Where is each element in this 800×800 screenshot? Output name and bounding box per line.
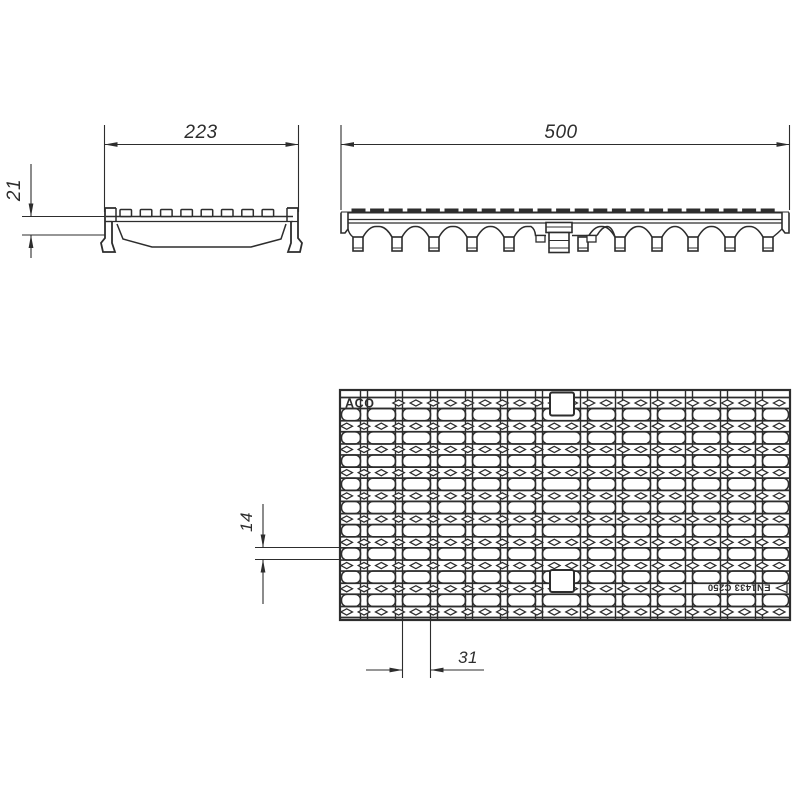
slot-cell [763, 409, 789, 421]
plan-view: ACO EN1433 C250 14 31 [237, 390, 790, 678]
diamond-tread [549, 470, 561, 476]
slot-cell [368, 594, 396, 606]
slot-cell [508, 548, 536, 560]
slot-cell [588, 478, 616, 490]
diamond-tread [773, 400, 785, 406]
diamond-tread [739, 539, 751, 545]
drawing-segment [439, 227, 467, 238]
drawing-segment [402, 227, 429, 238]
drawing-segment [705, 209, 718, 213]
diamond-tread [583, 562, 595, 568]
slot-cell [508, 478, 536, 490]
diamond-tread [514, 539, 526, 545]
slot-cell [438, 409, 466, 421]
diamond-tread [514, 493, 526, 499]
diamond-tread [618, 516, 630, 522]
drawing-segment [429, 237, 439, 251]
diamond-tread [549, 609, 561, 615]
diamond-tread [722, 609, 734, 615]
slot-cell [403, 455, 431, 467]
slot-cell [693, 594, 721, 606]
diamond-tread [341, 470, 353, 476]
diamond-tread [514, 516, 526, 522]
diamond-tread [531, 493, 543, 499]
slot-cell [508, 525, 536, 537]
diamond-tread [773, 516, 785, 522]
side-view: 500 [341, 122, 790, 253]
aco-brand-label: ACO [345, 397, 375, 411]
grate-technical-drawing: 223 21 500 ACO EN1433 C250 [0, 0, 800, 800]
diamond-tread [635, 400, 647, 406]
drawing-segment [625, 227, 652, 238]
diamond-tread [549, 423, 561, 429]
diamond-tread [445, 493, 457, 499]
diamond-tread [635, 562, 647, 568]
diamond-tread [704, 446, 716, 452]
slot-cell [403, 478, 431, 490]
diamond-tread [410, 539, 422, 545]
diamond-tread [445, 539, 457, 545]
drawing-segment [363, 227, 392, 238]
slot-cell [623, 409, 651, 421]
slot-cell [543, 548, 581, 560]
drawing-segment [550, 570, 574, 592]
dim-length-500: 500 [341, 122, 790, 210]
slot-cell [508, 571, 536, 583]
diamond-tread [739, 400, 751, 406]
drawing-segment [662, 227, 688, 238]
slot-cell [438, 432, 466, 444]
slot-cell [342, 432, 361, 444]
diamond-tread [600, 400, 612, 406]
slot-cell [473, 478, 501, 490]
diamond-tread [549, 446, 561, 452]
slot-cell [403, 525, 431, 537]
diamond-tread [670, 586, 682, 592]
drawing-segment [467, 237, 477, 251]
diamond-tread [514, 562, 526, 568]
diamond-tread [670, 423, 682, 429]
drawing-segment [743, 209, 756, 213]
dim-text-slot-height: 14 [237, 512, 256, 532]
drawing-segment [688, 237, 698, 251]
diamond-tread [652, 562, 664, 568]
diamond-tread [566, 609, 578, 615]
slot-cell [728, 548, 756, 560]
slot-cell [473, 409, 501, 421]
diamond-tread [652, 586, 664, 592]
diamond-tread [583, 493, 595, 499]
diamond-tread [514, 423, 526, 429]
drawing-segment [482, 209, 495, 213]
diamond-tread [756, 539, 768, 545]
slot-cell [728, 525, 756, 537]
slot-cell [588, 432, 616, 444]
diamond-tread [635, 609, 647, 615]
slot-cell [368, 571, 396, 583]
diamond-tread [739, 562, 751, 568]
diamond-tread [410, 423, 422, 429]
diamond-tread [704, 609, 716, 615]
diamond-tread [722, 516, 734, 522]
slot-cell [658, 432, 686, 444]
slot-cell [693, 525, 721, 537]
diamond-tread [687, 609, 699, 615]
diamond-tread [773, 470, 785, 476]
slot-cell [403, 548, 431, 560]
diamond-tread [670, 493, 682, 499]
diamond-tread [531, 423, 543, 429]
diamond-tread [722, 446, 734, 452]
diamond-tread [635, 586, 647, 592]
drawing-segment [222, 210, 234, 217]
slot-cell [693, 501, 721, 513]
diamond-tread [479, 493, 491, 499]
diamond-tread [583, 586, 595, 592]
diamond-tread [341, 423, 353, 429]
dim-width-223: 223 [105, 122, 299, 212]
diamond-tread [445, 586, 457, 592]
diamond-tread [756, 423, 768, 429]
diamond-tread [583, 400, 595, 406]
drawing-segment [631, 209, 644, 213]
slot-cell [473, 594, 501, 606]
slot-cell [438, 548, 466, 560]
drawing-segment [652, 237, 662, 251]
slot-cell [543, 478, 581, 490]
slot-cell [728, 594, 756, 606]
diamond-tread [652, 446, 664, 452]
slot-cell [342, 478, 361, 490]
slot-cell [438, 594, 466, 606]
drawing-segment [650, 209, 663, 213]
drawing-segment [587, 236, 596, 243]
slot-cell [588, 571, 616, 583]
diamond-tread [618, 609, 630, 615]
drawing-segment [371, 209, 384, 213]
diamond-tread [479, 400, 491, 406]
diamond-tread [600, 562, 612, 568]
slot-cell [658, 455, 686, 467]
diamond-tread [618, 586, 630, 592]
diamond-tread [670, 400, 682, 406]
diamond-tread [722, 539, 734, 545]
diamond-tread [739, 609, 751, 615]
drawing-segment [445, 209, 458, 213]
drawing-segment [101, 208, 116, 252]
diamond-tread [583, 470, 595, 476]
diamond-tread [376, 586, 388, 592]
diamond-tread [739, 446, 751, 452]
slot-cell [623, 594, 651, 606]
drawing-segment [761, 209, 774, 213]
slot-cell [658, 548, 686, 560]
slot-cell [508, 594, 536, 606]
drawing-segment [575, 209, 588, 213]
diamond-tread [566, 423, 578, 429]
diamond-tread [497, 586, 509, 592]
slot-cell [438, 478, 466, 490]
diamond-tread [687, 516, 699, 522]
diamond-tread [618, 493, 630, 499]
end-view-profile [101, 208, 302, 252]
diamond-tread [722, 423, 734, 429]
diamond-tread [652, 423, 664, 429]
slot-cell [473, 548, 501, 560]
diamond-tread [618, 470, 630, 476]
diamond-tread [600, 446, 612, 452]
slot-cell [728, 455, 756, 467]
diamond-tread [600, 493, 612, 499]
drawing-segment [477, 227, 504, 238]
diamond-tread [410, 470, 422, 476]
diamond-tread [549, 562, 561, 568]
dim-text-length: 500 [544, 122, 577, 143]
diamond-tread [618, 400, 630, 406]
slot-cell [368, 455, 396, 467]
diamond-tread [583, 609, 595, 615]
diamond-tread [704, 423, 716, 429]
slot-cell [763, 571, 789, 583]
diamond-tread [704, 470, 716, 476]
dim-height-21: 21 [4, 164, 105, 258]
drawing-segment [120, 210, 132, 217]
diamond-tread [566, 516, 578, 522]
casting-arrow-mark [777, 584, 788, 593]
slot-cell [728, 571, 756, 583]
slot-cell [728, 432, 756, 444]
diamond-tread [549, 539, 561, 545]
slot-cell [728, 409, 756, 421]
diamond-tread [376, 493, 388, 499]
slot-cell [588, 501, 616, 513]
slot-cell [368, 548, 396, 560]
slot-cell [623, 571, 651, 583]
slot-cell [658, 409, 686, 421]
diamond-tread [341, 586, 353, 592]
slot-cell [623, 455, 651, 467]
drawing-segment [687, 209, 700, 213]
drawing-segment [242, 210, 254, 217]
side-view-profile [341, 209, 789, 253]
diamond-tread [773, 493, 785, 499]
diamond-tread [773, 562, 785, 568]
diamond-tread [652, 493, 664, 499]
diamond-tread [618, 446, 630, 452]
diamond-tread [670, 516, 682, 522]
diamond-tread [445, 516, 457, 522]
slot-cell [403, 409, 431, 421]
slot-cell [623, 501, 651, 513]
drawing-segment [550, 393, 574, 416]
slot-cell [403, 432, 431, 444]
diamond-tread [479, 423, 491, 429]
drawing-segment [668, 209, 681, 213]
drawing-segment [392, 237, 402, 251]
slot-cell [342, 571, 361, 583]
diamond-tread [497, 470, 509, 476]
slot-cell [342, 525, 361, 537]
dim-text-slot-width: 31 [458, 648, 478, 667]
slot-cell [368, 432, 396, 444]
slot-cell [693, 432, 721, 444]
diamond-tread [739, 423, 751, 429]
diamond-tread [600, 586, 612, 592]
diamond-tread [635, 446, 647, 452]
diamond-tread [514, 586, 526, 592]
slot-cell [693, 478, 721, 490]
diamond-tread [773, 609, 785, 615]
drawing-segment [501, 209, 514, 213]
drawing-segment [352, 209, 365, 213]
slot-cell [342, 501, 361, 513]
diamond-tread [445, 423, 457, 429]
slot-cell [368, 478, 396, 490]
diamond-tread [670, 609, 682, 615]
slot-cell [623, 432, 651, 444]
slot-cell [508, 455, 536, 467]
diamond-tread [410, 446, 422, 452]
diamond-tread [756, 470, 768, 476]
diamond-tread [479, 586, 491, 592]
slot-cell [438, 501, 466, 513]
drawing-segment [262, 210, 274, 217]
drawing-segment [464, 209, 477, 213]
slot-cell [693, 409, 721, 421]
drawing-segment [161, 210, 173, 217]
diamond-tread [704, 493, 716, 499]
slot-cell [368, 525, 396, 537]
diamond-tread [670, 539, 682, 545]
diamond-tread [514, 400, 526, 406]
slot-cell [473, 501, 501, 513]
diamond-tread [600, 470, 612, 476]
diamond-tread [549, 516, 561, 522]
diamond-tread [341, 609, 353, 615]
diamond-tread [618, 562, 630, 568]
end-view: 223 21 [4, 122, 302, 258]
diamond-tread [376, 562, 388, 568]
diamond-tread [756, 562, 768, 568]
diamond-tread [618, 423, 630, 429]
slot-cell [623, 478, 651, 490]
diamond-tread [635, 470, 647, 476]
diamond-tread [341, 539, 353, 545]
slot-cell [588, 455, 616, 467]
diamond-tread [566, 539, 578, 545]
drawing-segment [341, 213, 348, 234]
slot-cell [658, 594, 686, 606]
diamond-tread [600, 539, 612, 545]
diamond-tread [687, 539, 699, 545]
drawing-segment [181, 210, 193, 217]
drawing-segment [725, 237, 735, 251]
diamond-tread [652, 516, 664, 522]
slot-cell [473, 455, 501, 467]
diamond-tread [739, 493, 751, 499]
diamond-tread [445, 446, 457, 452]
diamond-tread [479, 516, 491, 522]
diamond-tread [566, 493, 578, 499]
diamond-tread [773, 423, 785, 429]
diamond-tread [722, 470, 734, 476]
diamond-tread [704, 562, 716, 568]
drawing-segment [504, 237, 514, 251]
slot-cell [693, 571, 721, 583]
diamond-tread [635, 493, 647, 499]
diamond-tread [341, 562, 353, 568]
diamond-tread [445, 470, 457, 476]
diamond-tread [479, 562, 491, 568]
diamond-tread [583, 539, 595, 545]
diamond-tread [652, 609, 664, 615]
diamond-tread [756, 516, 768, 522]
diamond-tread [497, 562, 509, 568]
diamond-tread [479, 446, 491, 452]
diamond-tread [549, 493, 561, 499]
diamond-tread [376, 516, 388, 522]
drawing-segment [594, 209, 607, 213]
drawing-segment [287, 208, 302, 252]
drawing-segment [538, 209, 551, 213]
slot-cell [763, 501, 789, 513]
technical-drawing-page: 223 21 500 ACO EN1433 C250 [0, 0, 800, 800]
drawing-segment [519, 209, 532, 213]
diamond-tread [410, 516, 422, 522]
diamond-tread [514, 470, 526, 476]
slot-cell [403, 594, 431, 606]
diamond-tread [497, 539, 509, 545]
slot-cell [438, 455, 466, 467]
slot-cell [658, 525, 686, 537]
diamond-tread [687, 493, 699, 499]
slot-cell [728, 478, 756, 490]
slot-cell [763, 432, 789, 444]
diamond-tread [722, 562, 734, 568]
diamond-tread [376, 609, 388, 615]
diamond-tread [410, 400, 422, 406]
drawing-segment [348, 229, 353, 237]
drawing-segment [549, 233, 569, 253]
diamond-tread [635, 539, 647, 545]
diamond-tread [773, 539, 785, 545]
diamond-tread [600, 516, 612, 522]
slot-cell [342, 548, 361, 560]
diamond-tread [635, 516, 647, 522]
diamond-tread [531, 516, 543, 522]
diamond-tread [722, 400, 734, 406]
diamond-tread [704, 400, 716, 406]
diamond-tread [583, 423, 595, 429]
diamond-tread [652, 400, 664, 406]
slot-cell [623, 525, 651, 537]
diamond-tread [687, 470, 699, 476]
diamond-tread [531, 586, 543, 592]
slot-cell [473, 525, 501, 537]
slot-cell [728, 501, 756, 513]
diamond-tread [687, 446, 699, 452]
slot-cell [763, 455, 789, 467]
diamond-tread [410, 586, 422, 592]
slot-cell [403, 571, 431, 583]
diamond-tread [514, 446, 526, 452]
drawing-segment [735, 227, 763, 238]
diamond-tread [479, 609, 491, 615]
drawing-segment [536, 236, 545, 243]
slot-cell [543, 432, 581, 444]
diamond-tread [739, 516, 751, 522]
dim-text-height: 21 [4, 179, 25, 202]
